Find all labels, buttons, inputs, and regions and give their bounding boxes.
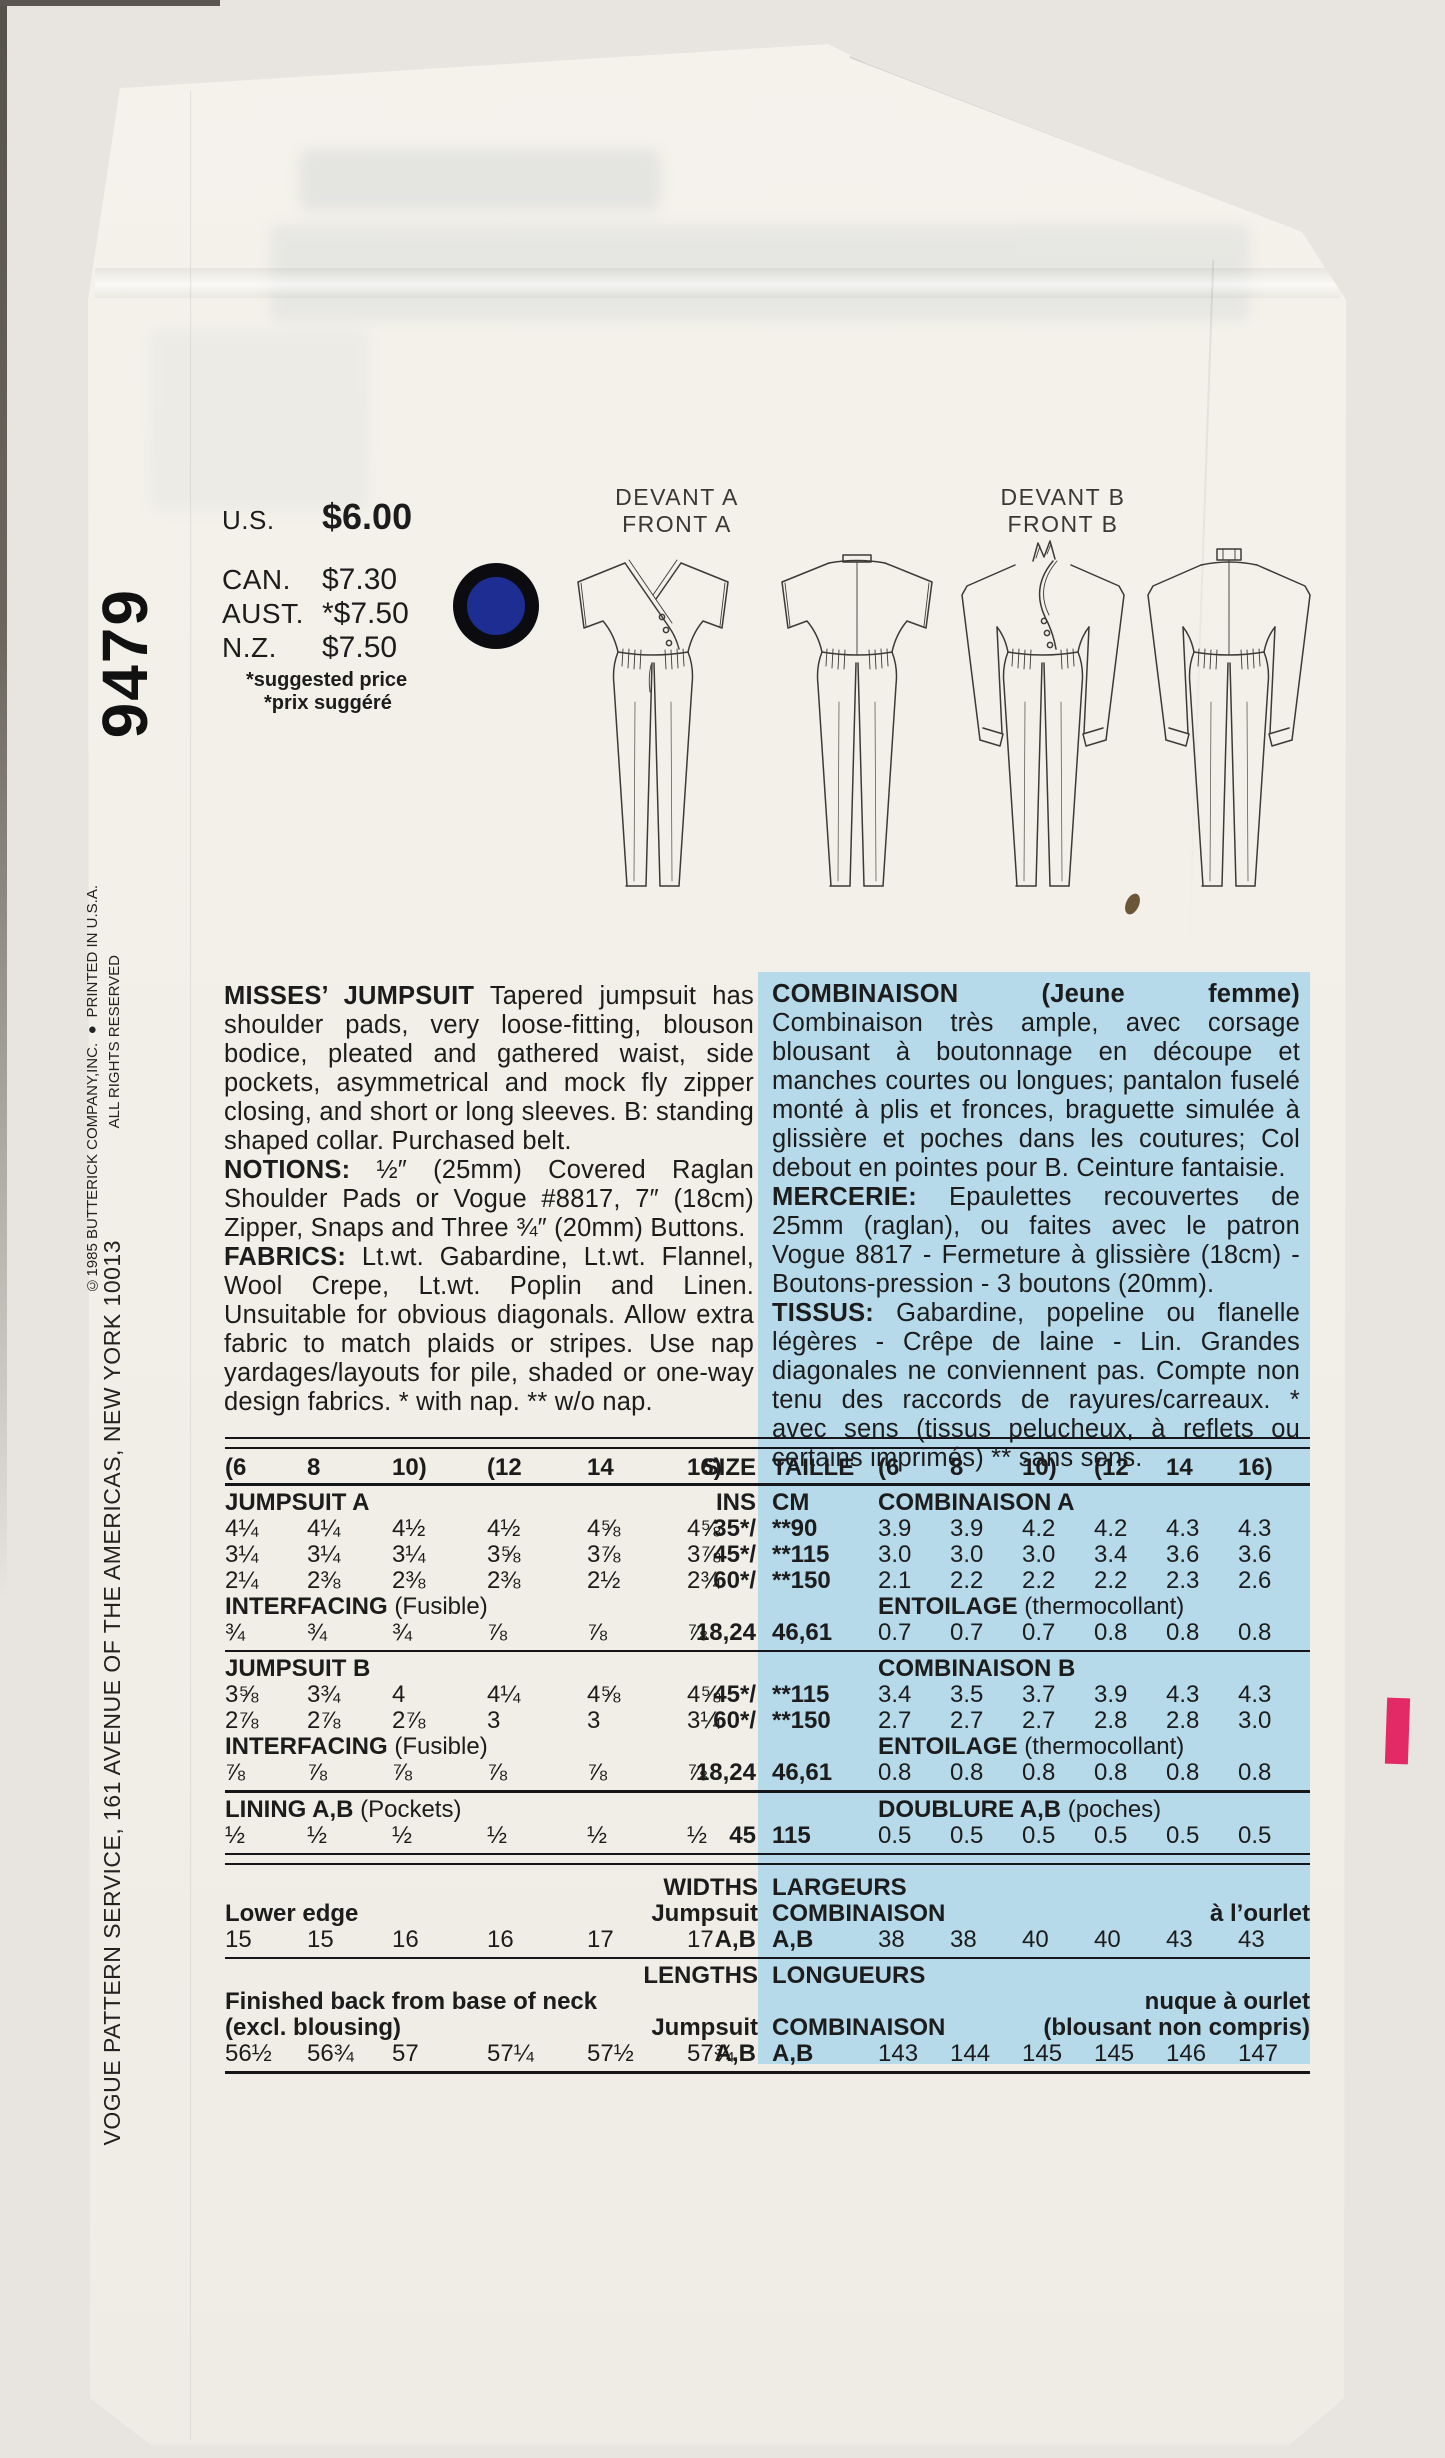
table-cell: 57 (392, 2041, 487, 2067)
lower-edge-label: Lower edge (225, 1901, 358, 1927)
back-a-drawing (767, 536, 947, 903)
garment-illustrations: DEVANT A FRONT A DEVANT B FRONT B (555, 478, 1345, 928)
interfacing-a-values-row: ¾¾¾⅞⅞⅞18,24 46,610.70.70.70.80.80.8 (225, 1620, 1310, 1646)
table-cell: 8 (950, 1453, 1022, 1483)
jumpsuit-word: Jumpsuit (651, 1901, 758, 1927)
cm-115: **115 (772, 1542, 829, 1568)
table-cell: 57½ (587, 2041, 687, 2067)
widths-title-row: WIDTHS LARGEURS (225, 1875, 1310, 1901)
interfacing-a-label-row: INTERFACING (Fusible) ENTOILAGE (thermoc… (225, 1594, 1310, 1620)
table-cell: 3.4 (878, 1682, 950, 1708)
table-cell: ⅞ (225, 1760, 307, 1786)
combinaison-a-label: COMBINAISON A (878, 1490, 1074, 1516)
doublure-lead: DOUBLURE A,B (878, 1796, 1061, 1823)
table-cell: 4.3 (1166, 1682, 1238, 1708)
table-cell: 10) (392, 1453, 487, 1483)
widths-label-row: Lower edgeJumpsuit COMBINAISONà l’ourlet (225, 1901, 1310, 1927)
blue-ink-dot (453, 563, 539, 649)
table-cell: 2½ (587, 1568, 687, 1594)
size-60: 60*/ (713, 1568, 756, 1594)
interfacing-lead: INTERFACING (225, 1593, 388, 1620)
table-cell: 2⅞ (225, 1708, 307, 1734)
back-b-drawing (1139, 536, 1319, 903)
table-cell: 3¼ (307, 1542, 392, 1568)
table-cell: 0.8 (1238, 1760, 1310, 1786)
description-french: COMBINAISON (Jeune femme) Combinaison tr… (772, 980, 1300, 1473)
table-cell: (6 (225, 1453, 307, 1483)
table-cell: 143 (878, 2041, 950, 2067)
cm-150: **150 (772, 1708, 831, 1734)
section-row-jumpsuit-a: JUMPSUIT AINS CMCOMBINAISON A (225, 1490, 1310, 1516)
size-45: 45*/ (713, 1682, 756, 1708)
table-cell: 0.8 (950, 1760, 1022, 1786)
lining-values-row: ½½½½½½45 1150.50.50.50.50.50.5 (225, 1823, 1310, 1849)
table-cell: 4.3 (1238, 1516, 1310, 1542)
table-cell: 4⅝ (587, 1682, 687, 1708)
table-cell: 2.3 (1166, 1568, 1238, 1594)
interfacing-rest: (Fusible) (388, 1733, 488, 1760)
table-cell: 14 (1166, 1453, 1238, 1483)
price-nz-label: N.Z. (222, 631, 322, 665)
ab-views: A,B (772, 2041, 813, 2067)
table-cell: 2.6 (1238, 1568, 1310, 1594)
table-cell: ¾ (307, 1620, 392, 1646)
table-cell: 3¼ (392, 1542, 487, 1568)
cm-115: **115 (772, 1682, 829, 1708)
yardage-row-b-150: 2⅞2⅞2⅞333¼60*/ **1502.72.72.72.82.83.0 (225, 1708, 1310, 1734)
table-cell: 147 (1238, 2041, 1310, 2067)
scan-edge (0, 0, 220, 6)
table-cell: 15 (225, 1927, 307, 1953)
table-cell: 2⅞ (392, 1708, 487, 1734)
table-cell: ⅞ (587, 1760, 687, 1786)
price-us: U.S. $6.00 (222, 500, 542, 537)
table-cell: 0.5 (1022, 1823, 1094, 1849)
table-cell: 3.6 (1166, 1542, 1238, 1568)
price-note-fr: *prix suggéré (264, 692, 542, 715)
table-bottom-rule (225, 1853, 1310, 1865)
table-cell: 14 (587, 1453, 687, 1483)
lead-misses-jumpsuit: MISSES’ JUMPSUIT (224, 982, 474, 1010)
pink-edge-mark (1385, 1698, 1410, 1765)
section-rule (225, 1790, 1310, 1793)
table-cell: 2⅜ (307, 1568, 392, 1594)
table-cell: (12 (487, 1453, 587, 1483)
section-row-jumpsuit-b: JUMPSUIT B COMBINAISON B (225, 1656, 1310, 1682)
table-cell: 4¼ (307, 1516, 392, 1542)
table-cell: 2.1 (878, 1568, 950, 1594)
cm-150: **150 (772, 1568, 831, 1594)
table-cell: 145 (1022, 2041, 1094, 2067)
table-cell: 3 (487, 1708, 587, 1734)
table-cell: 10) (1022, 1453, 1094, 1483)
table-cell: ⅞ (487, 1760, 587, 1786)
table-cell: 38 (950, 1927, 1022, 1953)
yardage-table: (6810)(121416) SIZE TAILLE (6810)(121416… (225, 1437, 1310, 2074)
print-showthrough (300, 150, 660, 210)
table-cell: 0.5 (878, 1823, 950, 1849)
widths-values-row: 151516161717A,B A,B383840404343 (225, 1927, 1310, 1953)
front-a-drawing (563, 536, 743, 903)
table-header-row: (6810)(121416) SIZE TAILLE (6810)(121416… (225, 1453, 1310, 1483)
table-cell: 3.5 (950, 1682, 1022, 1708)
table-cell: 3.9 (878, 1516, 950, 1542)
size-60: 60*/ (713, 1708, 756, 1734)
widths-title-en: WIDTHS (663, 1875, 758, 1901)
header-rule (225, 1483, 1310, 1486)
view-a-label: DEVANT A FRONT A (577, 484, 777, 538)
table-cell: 4.3 (1166, 1516, 1238, 1542)
table-cell: 0.8 (1094, 1760, 1166, 1786)
table-cell: 2.7 (950, 1708, 1022, 1734)
doublure-rest: (poches) (1061, 1796, 1161, 1823)
table-cell: 8 (307, 1453, 392, 1483)
table-cell: 0.8 (1166, 1620, 1238, 1646)
lengths-values-row: 56½56¾5757¼57½57¾A,B A,B1431441451451461… (225, 2041, 1310, 2067)
table-cell: 146 (1166, 2041, 1238, 2067)
table-cell: 4½ (487, 1516, 587, 1542)
table-cell: 0.5 (1238, 1823, 1310, 1849)
flap-diagonal-crease (849, 56, 1288, 226)
lead-fabrics: FABRICS: (224, 1243, 346, 1271)
table-cell: 0.5 (1094, 1823, 1166, 1849)
combinaison-word: COMBINAISON (772, 1901, 945, 1927)
jumpsuit-a-label: JUMPSUIT A (225, 1490, 369, 1516)
table-cell: 0.5 (950, 1823, 1022, 1849)
paragraph-garment-en: MISSES’ JUMPSUIT Tapered jumpsuit has sh… (224, 982, 754, 1156)
price-us-label: U.S. (222, 503, 322, 537)
table-cell: 0.8 (878, 1760, 950, 1786)
table-top-rule (225, 1437, 1310, 1449)
paragraph-garment-fr: COMBINAISON (Jeune femme) Combinaison tr… (772, 980, 1300, 1183)
table-cell: 4 (392, 1682, 487, 1708)
table-cell: 0.7 (878, 1620, 950, 1646)
lengths-title-en: LENGTHS (643, 1963, 758, 1989)
table-cell: ¾ (225, 1620, 307, 1646)
table-cell: 0.5 (1166, 1823, 1238, 1849)
paragraph-notions: NOTIONS: ½″ (25mm) Covered Raglan Should… (224, 1156, 754, 1243)
size-18-24: 18,24 (696, 1760, 756, 1786)
doublure-label-fr: DOUBLURE A,B (poches) (878, 1797, 1161, 1823)
nuque-note-fr: nuque à ourlet (1145, 1989, 1310, 2015)
size-35: 35*/ (713, 1516, 756, 1542)
cm-unit: CM (772, 1490, 809, 1516)
view-b-label: DEVANT B FRONT B (963, 484, 1163, 538)
cm-46-61: 46,61 (772, 1620, 832, 1646)
table-cell: (12 (1094, 1453, 1166, 1483)
cm-115: 115 (772, 1823, 811, 1849)
table-cell: 16 (487, 1927, 587, 1953)
table-cell: 38 (878, 1927, 950, 1953)
header-size-label: SIZE (703, 1453, 756, 1483)
price-nz-value: $7.50 (322, 631, 397, 665)
table-cell: 56½ (225, 2041, 307, 2067)
lining-label-en: LINING A,B (Pockets) (225, 1797, 461, 1823)
print-showthrough (150, 330, 370, 510)
section-rule (225, 1650, 1310, 1653)
lining-lead: LINING A,B (225, 1796, 353, 1823)
table-cell: 2.2 (950, 1568, 1022, 1594)
entoilage-a-fr: ENTOILAGE (thermocollant) (878, 1594, 1184, 1620)
size-18-24: 18,24 (696, 1620, 756, 1646)
interfacing-b-values-row: ⅞⅞⅞⅞⅞⅞18,24 46,610.80.80.80.80.80.8 (225, 1760, 1310, 1786)
section-rule (225, 1957, 1310, 1960)
widths-title-fr: LARGEURS (772, 1875, 907, 1901)
description-english: MISSES’ JUMPSUIT Tapered jumpsuit has sh… (224, 982, 754, 1417)
front-b-drawing (953, 536, 1133, 903)
table-cell: 3⅝ (225, 1682, 307, 1708)
interfacing-rest: (Fusible) (388, 1593, 488, 1620)
table-cell: 2.2 (1022, 1568, 1094, 1594)
table-cell: 4¼ (487, 1682, 587, 1708)
table-cell: 43 (1238, 1927, 1310, 1953)
lengths-label-row-1: Finished back from base of neck nuque à … (225, 1989, 1310, 2015)
table-cell: 4⅝ (587, 1516, 687, 1542)
view-b-label-fr: DEVANT B (963, 484, 1163, 511)
table-cell: ½ (392, 1823, 487, 1849)
blousant-note-fr: (blousant non compris) (1043, 2015, 1310, 2041)
table-cell: 4.3 (1238, 1682, 1310, 1708)
combinaison-word: COMBINAISON (772, 2015, 945, 2041)
table-cell: 2⅜ (487, 1568, 587, 1594)
lead-combinaison: COMBINAISON (Jeune femme) (772, 980, 1300, 1008)
table-cell: 3¾ (307, 1682, 392, 1708)
table-cell: 3.0 (878, 1542, 950, 1568)
header-sizes-left: (6810)(121416) (225, 1453, 758, 1483)
table-cell: 4½ (392, 1516, 487, 1542)
table-cell: 3.0 (1022, 1542, 1094, 1568)
table-cell: 43 (1166, 1927, 1238, 1953)
table-cell: 57¼ (487, 2041, 587, 2067)
hem-note-fr: à l’ourlet (1210, 1901, 1310, 1927)
table-cell: 40 (1022, 1927, 1094, 1953)
table-cell: 3.7 (1022, 1682, 1094, 1708)
table-cell: ¾ (392, 1620, 487, 1646)
table-cell: 0.7 (950, 1620, 1022, 1646)
finished-back-label: Finished back from base of neck (225, 1989, 597, 2015)
scanned-pattern-envelope: { "colors":{ "scan_bg":"#e8e5e0", "paper… (0, 0, 1445, 2458)
interfacing-b-en: INTERFACING (Fusible) (225, 1734, 488, 1760)
table-cell: 4¼ (225, 1516, 307, 1542)
table-cell: 2.8 (1166, 1708, 1238, 1734)
table-cell: 3⅞ (587, 1542, 687, 1568)
price-us-value: $6.00 (322, 500, 412, 534)
table-cell: ⅞ (307, 1760, 392, 1786)
text-garment-fr: Combinaison très ample, avec corsage blo… (772, 1009, 1300, 1182)
table-cell: (6 (878, 1453, 950, 1483)
entoilage-b-fr: ENTOILAGE (thermocollant) (878, 1734, 1184, 1760)
table-cell: 145 (1094, 2041, 1166, 2067)
cm-90: **90 (772, 1516, 817, 1542)
pattern-number: 9479 (88, 588, 162, 738)
table-cell: ⅞ (587, 1620, 687, 1646)
jumpsuit-word: Jumpsuit (651, 2015, 758, 2041)
paragraph-fabrics: FABRICS: Lt.wt. Gabardine, Lt.wt. Flanne… (224, 1243, 754, 1417)
lead-tissus: TISSUS: (772, 1299, 874, 1327)
table-cell: 3.6 (1238, 1542, 1310, 1568)
table-cell: 0.8 (1166, 1760, 1238, 1786)
table-cell: 2⅜ (392, 1568, 487, 1594)
final-rule (225, 2071, 1310, 2074)
table-cell: 2¼ (225, 1568, 307, 1594)
table-cell: 4.2 (1022, 1516, 1094, 1542)
view-b-label-en: FRONT B (963, 511, 1163, 538)
table-cell: 3.4 (1094, 1542, 1166, 1568)
table-cell: 0.8 (1022, 1760, 1094, 1786)
rights-line: ALL RIGHTS RESERVED (106, 955, 123, 1128)
price-aust-value: *$7.50 (322, 597, 409, 631)
entoilage-lead: ENTOILAGE (878, 1593, 1018, 1620)
yardage-row-b-115: 3⅝3¾44¼4⅝4⅝45*/ **1153.43.53.73.94.34.3 (225, 1682, 1310, 1708)
price-note-en: *suggested price (246, 669, 542, 692)
table-cell: 3¼ (225, 1542, 307, 1568)
excl-blousing-label: (excl. blousing) (225, 2015, 401, 2041)
header-sizes-right: (6810)(121416) (878, 1453, 1310, 1483)
ins-unit: INS (716, 1490, 756, 1516)
table-cell: 15 (307, 1927, 392, 1953)
price-aust-label: AUST. (222, 597, 322, 631)
lining-label-row: LINING A,B (Pockets) DOUBLURE A,B (poche… (225, 1797, 1310, 1823)
table-cell: 3.0 (1238, 1708, 1310, 1734)
table-cell: 2.7 (878, 1708, 950, 1734)
cm-46-61: 46,61 (772, 1760, 832, 1786)
table-cell: 40 (1094, 1927, 1166, 1953)
table-cell: 2.7 (1022, 1708, 1094, 1734)
header-taille-label: TAILLE (772, 1453, 854, 1483)
view-a-label-en: FRONT A (577, 511, 777, 538)
interfacing-lead: INTERFACING (225, 1733, 388, 1760)
table-cell: 0.8 (1238, 1620, 1310, 1646)
scan-edge (0, 0, 7, 1600)
table-cell: 144 (950, 2041, 1022, 2067)
table-cell: 3.9 (950, 1516, 1022, 1542)
yardage-row-a-90: 4¼4¼4½4½4⅝4⅝35*/ **903.93.94.24.24.34.3 (225, 1516, 1310, 1542)
interfacing-b-label-row: INTERFACING (Fusible) ENTOILAGE (thermoc… (225, 1734, 1310, 1760)
ab-views: A,B (715, 1927, 756, 1953)
lengths-title-row: LENGTHS LONGUEURS (225, 1963, 1310, 1989)
ab-views: A,B (772, 1927, 813, 1953)
table-cell: 2.8 (1094, 1708, 1166, 1734)
table-cell: ⅞ (392, 1760, 487, 1786)
table-cell: ½ (307, 1823, 392, 1849)
size-45: 45 (729, 1823, 756, 1849)
entoilage-rest: (thermocollant) (1018, 1733, 1185, 1760)
table-cell: 4.2 (1094, 1516, 1166, 1542)
lining-rest: (Pockets) (353, 1796, 461, 1823)
flap-fold-crease (95, 268, 1340, 298)
copyright-line: ©1985 BUTTERICK COMPANY,INC. ● PRINTED I… (84, 885, 101, 1294)
entoilage-lead: ENTOILAGE (878, 1733, 1018, 1760)
table-cell: ⅞ (487, 1620, 587, 1646)
table-cell: 0.8 (1094, 1620, 1166, 1646)
table-cell: 3.0 (950, 1542, 1022, 1568)
table-cell: 2.2 (1094, 1568, 1166, 1594)
view-a-label-fr: DEVANT A (577, 484, 777, 511)
combinaison-b-label: COMBINAISON B (878, 1656, 1075, 1682)
ab-views: A,B (715, 2041, 756, 2067)
table-cell: ½ (225, 1823, 307, 1849)
side-fold-crease (190, 90, 192, 2440)
lead-notions: NOTIONS: (224, 1156, 350, 1184)
table-cell: 16 (392, 1927, 487, 1953)
table-cell: 2⅞ (307, 1708, 392, 1734)
table-cell: 3⅝ (487, 1542, 587, 1568)
size-45: 45*/ (713, 1542, 756, 1568)
jumpsuit-b-label: JUMPSUIT B (225, 1656, 370, 1682)
yardage-row-a-115: 3¼3¼3¼3⅝3⅞3⅞45*/ **1153.03.03.03.43.63.6 (225, 1542, 1310, 1568)
table-cell: 3.9 (1094, 1682, 1166, 1708)
table-cell: 3 (587, 1708, 687, 1734)
interfacing-a-en: INTERFACING (Fusible) (225, 1594, 488, 1620)
entoilage-rest: (thermocollant) (1018, 1593, 1185, 1620)
publisher-address: VOGUE PATTERN SERVICE, 161 AVENUE OF THE… (99, 1240, 126, 2146)
table-cell: 56¾ (307, 2041, 392, 2067)
table-cell: 17 (587, 1927, 687, 1953)
price-can-label: CAN. (222, 563, 322, 597)
lengths-label-row-2: (excl. blousing)Jumpsuit COMBINAISON(blo… (225, 2015, 1310, 2041)
table-cell: ½ (587, 1823, 687, 1849)
table-cell: 16) (1238, 1453, 1310, 1483)
price-can-value: $7.30 (322, 563, 397, 597)
yardage-row-a-150: 2¼2⅜2⅜2⅜2½2¾60*/ **1502.12.22.22.22.32.6 (225, 1568, 1310, 1594)
table-cell: 0.7 (1022, 1620, 1094, 1646)
table-cell: ½ (487, 1823, 587, 1849)
lengths-title-fr: LONGUEURS (772, 1963, 925, 1989)
lead-mercerie: MERCERIE: (772, 1183, 917, 1211)
paragraph-mercerie: MERCERIE: Epaulettes recouvertes de 25mm… (772, 1183, 1300, 1299)
